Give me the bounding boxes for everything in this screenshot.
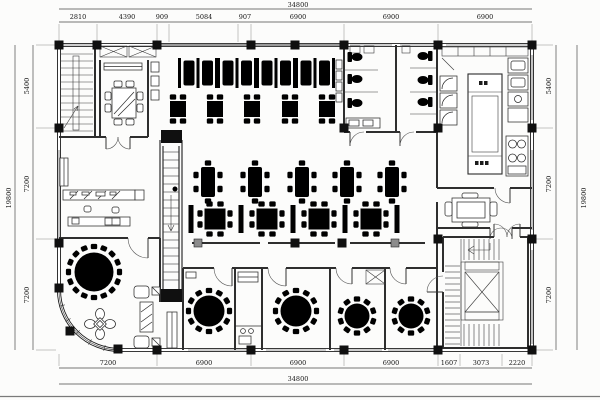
stairs-northwest	[59, 45, 100, 137]
dimension-chain-left: 5400 7200 7200 19800	[5, 42, 56, 353]
dim-top-seg-6: 6900	[383, 13, 400, 21]
dim-right-seg-0: 5400	[545, 78, 553, 95]
dim-left-seg-2: 7200	[23, 287, 31, 304]
vip-round-table	[66, 244, 122, 300]
room-c-table	[337, 296, 376, 335]
four-seat-tables	[170, 94, 335, 123]
dim-bottom-seg-2: 6900	[290, 359, 307, 367]
six-seat-tables	[193, 160, 406, 203]
kitchen-island	[468, 74, 502, 174]
dim-bottom-total: 34800	[288, 375, 309, 383]
tv-cabinet	[366, 270, 385, 284]
dim-top-seg-2: 909	[156, 13, 168, 21]
dim-top-seg-1: 4390	[119, 13, 136, 21]
room-square-table	[100, 46, 159, 149]
kitchen	[437, 45, 532, 268]
dim-right-seg-1: 7200	[545, 176, 553, 193]
dim-top-seg-4: 907	[239, 13, 251, 21]
room-b-table	[273, 288, 319, 334]
dim-top-seg-0: 2810	[70, 13, 87, 21]
dim-top-seg-5: 6900	[290, 13, 307, 21]
prep-room-table	[445, 193, 497, 227]
room-a-table	[186, 288, 232, 334]
dim-left-seg-0: 5400	[23, 78, 31, 95]
elevator-shaft	[461, 262, 503, 320]
dim-bottom-seg-1: 6900	[196, 359, 213, 367]
dim-top-seg-7: 6900	[477, 13, 494, 21]
dim-left-total: 19800	[5, 188, 13, 209]
floor-plan-drawing: 34800 2810 4390 909 5084 907 6900 6900 6…	[0, 0, 600, 400]
dim-bottom-seg-4: 1607	[441, 359, 458, 367]
dimension-chain-top: 34800 2810 4390 909 5084 907 6900 6900 6…	[56, 1, 535, 42]
bar-area	[60, 158, 144, 226]
private-rooms	[183, 268, 437, 350]
floor-plan-svg: 34800 2810 4390 909 5084 907 6900 6900 6…	[0, 0, 600, 400]
escalator	[160, 130, 182, 302]
dim-left-seg-1: 7200	[23, 176, 31, 193]
square-banquet-table	[104, 63, 143, 125]
dim-right-seg-2: 7200	[545, 287, 553, 304]
dim-right-total: 19800	[580, 188, 588, 209]
dimension-chain-right: 5400 7200 7200 19800	[535, 42, 588, 353]
central-dining	[189, 160, 426, 243]
restrooms	[344, 45, 437, 146]
dim-bottom-seg-6: 2220	[509, 359, 526, 367]
dim-top-seg-3: 5084	[196, 13, 213, 21]
room-d-table	[391, 296, 430, 335]
dim-bottom-seg-5: 3073	[473, 359, 490, 367]
stair-treads	[445, 239, 499, 346]
dim-bottom-seg-0: 7200	[100, 359, 117, 367]
dim-top-total: 34800	[288, 1, 309, 9]
dimension-chain-bottom: 7200 6900 6900 6900 1607 3073 2220 34800	[56, 354, 535, 387]
dim-bottom-seg-3: 6900	[383, 359, 400, 367]
flower-table	[85, 309, 116, 340]
